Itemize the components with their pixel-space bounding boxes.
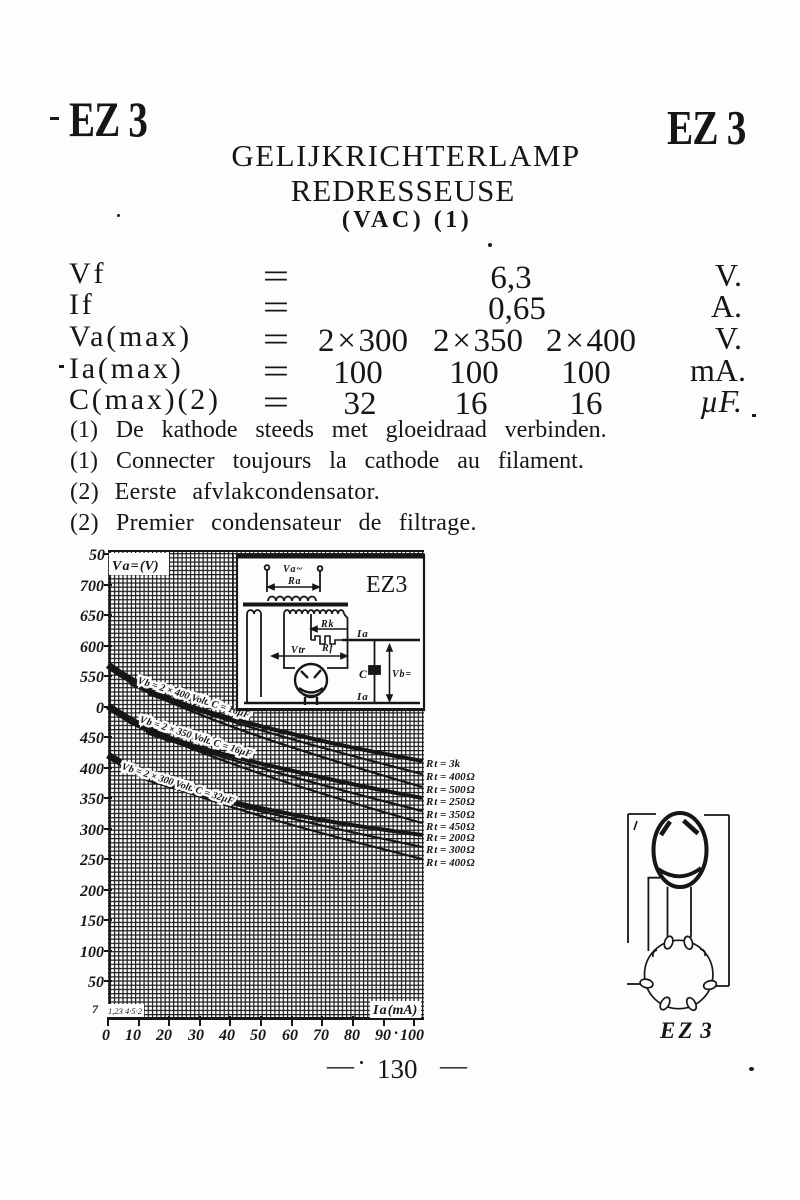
svg-text:V tr: V tr bbox=[291, 645, 305, 656]
svg-text:10: 10 bbox=[125, 1027, 141, 1044]
svg-text:·: · bbox=[394, 1025, 398, 1042]
svg-text:R t = 250 Ω: R t = 250 Ω bbox=[425, 796, 475, 808]
svg-text:250: 250 bbox=[79, 852, 104, 869]
svg-text:80: 80 bbox=[344, 1027, 360, 1044]
svg-text:300: 300 bbox=[79, 822, 104, 839]
svg-text:V b =: V b = bbox=[392, 669, 411, 680]
svg-text:20: 20 bbox=[155, 1027, 172, 1044]
svg-text:600: 600 bbox=[80, 639, 104, 656]
svg-text:450: 450 bbox=[79, 730, 104, 747]
svg-text:350: 350 bbox=[79, 791, 104, 808]
svg-text:50: 50 bbox=[88, 974, 104, 991]
svg-text:I a (mA): I a (mA) bbox=[372, 1003, 417, 1018]
svg-text:EZ 3: EZ 3 bbox=[659, 1018, 715, 1043]
svg-text:I a: I a bbox=[356, 628, 368, 640]
svg-text:60: 60 bbox=[282, 1027, 298, 1044]
svg-text:R k: R k bbox=[320, 619, 334, 630]
svg-text:700: 700 bbox=[80, 578, 104, 595]
svg-text:650: 650 bbox=[80, 608, 104, 625]
svg-text:1,23 4·5·2: 1,23 4·5·2 bbox=[108, 1006, 143, 1016]
svg-text:100: 100 bbox=[400, 1027, 424, 1044]
svg-text:R f: R f bbox=[321, 643, 335, 654]
svg-text:R t = 350 Ω: R t = 350 Ω bbox=[425, 809, 475, 821]
svg-text:R t = 400 Ω: R t = 400 Ω bbox=[425, 857, 475, 869]
svg-text:40: 40 bbox=[218, 1027, 235, 1044]
svg-text:550: 550 bbox=[80, 669, 104, 686]
svg-text:EZ3: EZ3 bbox=[366, 572, 407, 598]
svg-text:200: 200 bbox=[79, 883, 104, 900]
svg-text:400: 400 bbox=[79, 761, 104, 778]
svg-text:V a ~: V a ~ bbox=[283, 564, 302, 575]
svg-text:V a = (V): V a = (V) bbox=[112, 559, 158, 574]
svg-text:0: 0 bbox=[96, 700, 104, 717]
svg-text:R t = 200 Ω: R t = 200 Ω bbox=[425, 832, 475, 844]
svg-text:R t = 500 Ω: R t = 500 Ω bbox=[425, 784, 475, 796]
svg-text:7: 7 bbox=[92, 1002, 99, 1016]
svg-text:R a: R a bbox=[287, 576, 301, 587]
svg-text:R t = 3k: R t = 3k bbox=[425, 758, 461, 770]
svg-text:70: 70 bbox=[313, 1027, 329, 1044]
svg-text:100: 100 bbox=[80, 944, 104, 961]
svg-text:50: 50 bbox=[250, 1027, 266, 1044]
svg-text:50: 50 bbox=[89, 547, 105, 564]
svg-text:30: 30 bbox=[187, 1027, 204, 1044]
svg-text:90: 90 bbox=[375, 1027, 391, 1044]
svg-text:I a: I a bbox=[356, 691, 368, 703]
svg-text:150: 150 bbox=[80, 913, 104, 930]
svg-text:C: C bbox=[359, 667, 368, 681]
svg-text:R t = 400 Ω: R t = 400 Ω bbox=[425, 771, 475, 783]
svg-text:R t = 300 Ω: R t = 300 Ω bbox=[425, 844, 475, 856]
svg-text:0: 0 bbox=[102, 1027, 110, 1044]
